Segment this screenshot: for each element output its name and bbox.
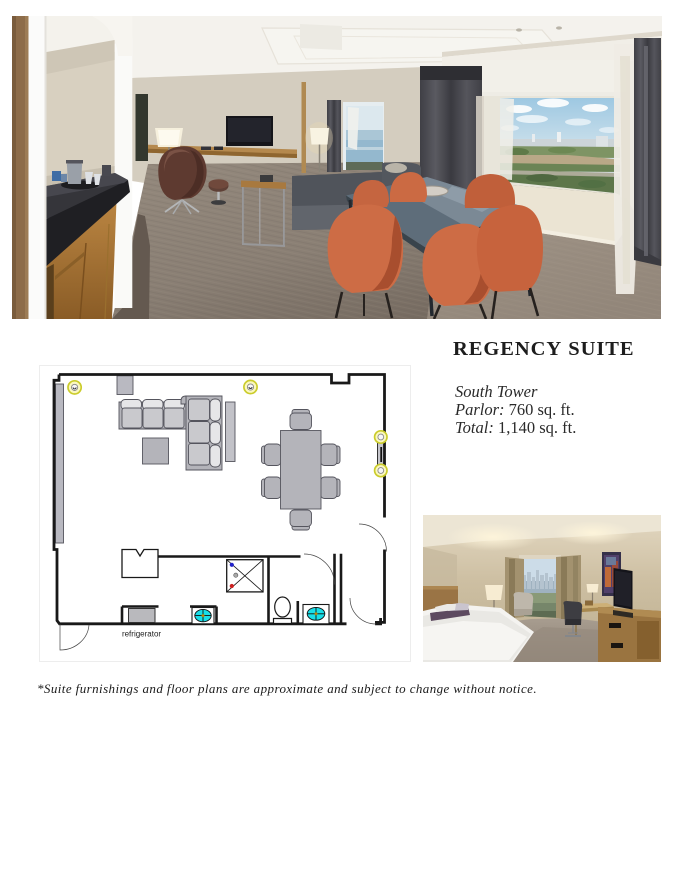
svg-text:refrigerator: refrigerator [122,630,161,639]
